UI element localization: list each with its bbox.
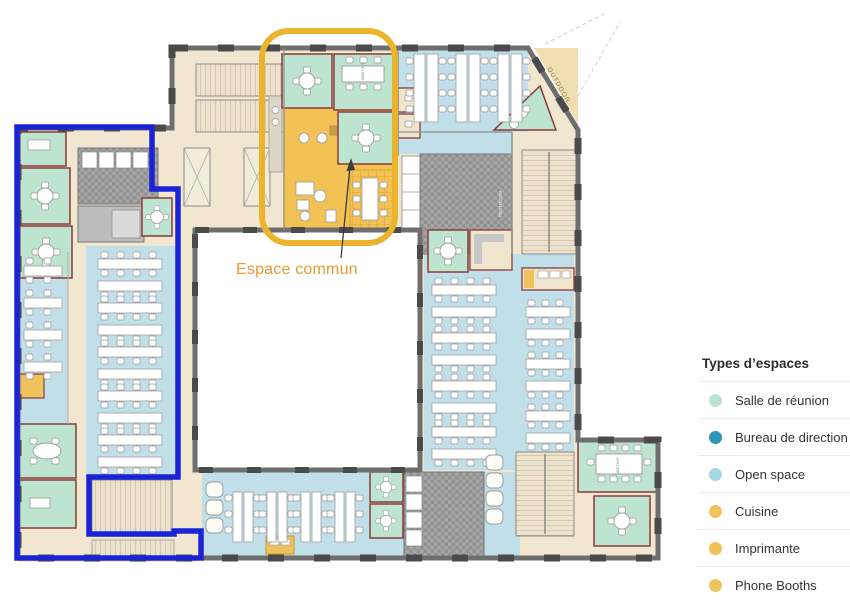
legend-title: Types d’espaces [702,356,850,371]
meeting-label: MEETING [361,62,365,79]
legend-item-phone-booths: Phone Booths [698,566,850,603]
director-office-color-dot [709,431,722,444]
legend-item-label: Salle de réunion [735,393,829,408]
elevator [184,148,210,206]
legend-item-imprimante: Imprimante [698,529,850,566]
legend-item-label: Bureau de direction [735,430,848,445]
legend-item-label: Phone Booths [735,578,817,593]
floor-plan-viewer: RESTROOM [0,0,850,604]
legend-item-open-space: Open space [698,455,850,492]
espace-commun-label: Espace commun [236,261,358,279]
meeting-label: MEETING [616,457,620,474]
kitchen-color-dot [709,505,722,518]
restroom-label: RESTROOM [498,191,503,217]
legend-item-label: Imprimante [735,541,800,556]
legend-item-label: Cuisine [735,504,778,519]
legend: Types d’espaces Salle de réunion Bureau … [698,356,850,603]
legend-item-label: Open space [735,467,805,482]
phone-booth-color-dot [709,579,722,592]
legend-item-salle-de-reunion: Salle de réunion [698,381,850,418]
elevator [244,148,270,206]
open-space-color-dot [709,468,722,481]
legend-item-bureau-de-direction: Bureau de direction [698,418,850,455]
meeting-room-color-dot [709,394,722,407]
legend-item-cuisine: Cuisine [698,492,850,529]
printer-color-dot [709,542,722,555]
